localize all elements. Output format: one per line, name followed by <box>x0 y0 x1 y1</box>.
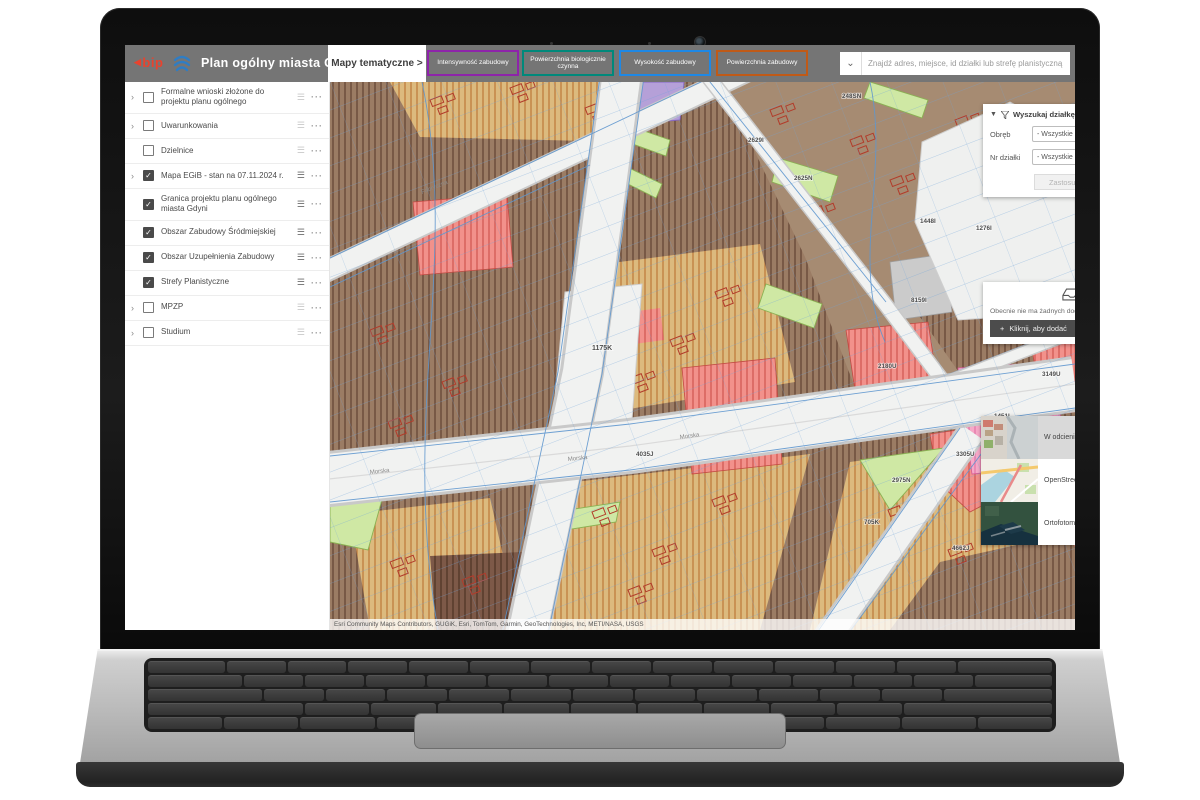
collapse-caret-icon[interactable]: ▼ <box>990 111 997 118</box>
layer-label: Dzielnice <box>161 146 297 156</box>
apply-button[interactable]: Zastosuj <box>1034 174 1075 190</box>
options-icon[interactable]: ··· <box>311 121 323 131</box>
theme-button-intensywnosc[interactable]: Intensywność zabudowy <box>427 50 519 76</box>
map-container: 248SN 2625N 2629I 1175K 1448I 1276I 8159… <box>330 82 1075 630</box>
bip-logo[interactable]: ◀bip <box>134 55 163 70</box>
layer-checkbox[interactable]: ✓ <box>143 277 154 288</box>
plus-icon: + <box>1000 324 1004 333</box>
options-icon[interactable]: ··· <box>311 303 323 313</box>
legend-icon[interactable]: ☰ <box>297 302 305 313</box>
svg-text:3149U: 3149U <box>1042 371 1061 378</box>
app-header: ◀bip Plan ogólny miasta Gdyni Mapy temat… <box>125 45 1075 82</box>
svg-text:1175K: 1175K <box>592 345 612 352</box>
layer-checkbox[interactable]: ✓ <box>143 199 154 210</box>
laptop-base-edge <box>76 762 1124 787</box>
layer-row-obszar-zabudowy[interactable]: › ✓ Obszar Zabudowy Śródmiejskiej ☰··· <box>125 221 329 246</box>
svg-text:2180U: 2180U <box>878 363 897 370</box>
legend-icon[interactable]: ☰ <box>297 170 305 181</box>
basemap-option-ortofotomapa[interactable]: Ortofotomapa <box>981 502 1075 545</box>
layer-row-granica-projektu[interactable]: › ✓ Granica projektu planu ogólnego mias… <box>125 189 329 221</box>
layer-row-formalne-wnioski[interactable]: › ✓ Formalne wnioski złożone do projektu… <box>125 82 329 114</box>
svg-text:248SN: 248SN <box>842 93 862 100</box>
theme-button-wysokosc[interactable]: Wysokość zabudowy <box>619 50 711 76</box>
chevron-right-icon[interactable]: › <box>131 328 141 338</box>
svg-text:705K: 705K <box>864 519 880 526</box>
layer-label: Strefy Planistyczne <box>161 277 297 287</box>
layer-label: Uwarunkowania <box>161 121 297 131</box>
options-icon[interactable]: ··· <box>311 253 323 263</box>
layer-checkbox[interactable]: ✓ <box>143 170 154 181</box>
layer-label: Mapa EGiB - stan na 07.11.2024 r. <box>161 171 297 181</box>
laptop-deck <box>80 649 1120 763</box>
basemap-option-openstreetmap[interactable]: OpenStreetMap <box>981 459 1075 502</box>
legend-icon[interactable]: ☰ <box>297 327 305 338</box>
panel-title: Wyszukaj działkę (stan na <box>1013 110 1075 119</box>
obreb-select[interactable]: - Wszystkie <box>1032 126 1075 142</box>
svg-text:3305U: 3305U <box>956 451 975 458</box>
layer-row-studium[interactable]: › ✓ Studium ☰··· <box>125 321 329 346</box>
options-icon[interactable]: ··· <box>311 228 323 238</box>
add-data-panel: Obecnie nie ma żadnych dodatków +Kliknij… <box>983 282 1075 344</box>
theme-button-powierzchnia-biologiczna[interactable]: Powierzchnia biologicznie czynna <box>522 50 614 76</box>
layer-checkbox[interactable]: ✓ <box>143 327 154 338</box>
basemap-label: W odcieniach szarości <box>1038 416 1075 459</box>
layer-row-mapa-egib[interactable]: › ✓ Mapa EGiB - stan na 07.11.2024 r. ☰·… <box>125 164 329 189</box>
search-box: ⌄ <box>840 52 1070 75</box>
app-screen: ◀bip Plan ogólny miasta Gdyni Mapy temat… <box>125 45 1075 630</box>
legend-icon[interactable]: ☰ <box>297 227 305 238</box>
layer-checkbox[interactable]: ✓ <box>143 252 154 263</box>
layer-row-mpzp[interactable]: › ✓ MPZP ☰··· <box>125 296 329 321</box>
layer-checkbox[interactable]: ✓ <box>143 145 154 156</box>
layer-label: MPZP <box>161 302 297 312</box>
laptop-touchpad <box>414 713 786 749</box>
options-icon[interactable]: ··· <box>311 92 323 102</box>
svg-text:4035J: 4035J <box>636 451 654 458</box>
field-label: Nr działki <box>990 153 1032 162</box>
tray-icon <box>1062 288 1075 301</box>
map-canvas[interactable]: 248SN 2625N 2629I 1175K 1448I 1276I 8159… <box>330 82 1075 630</box>
layer-label: Obszar Zabudowy Śródmiejskiej <box>161 227 297 237</box>
search-input[interactable] <box>862 52 1070 75</box>
layer-checkbox[interactable]: ✓ <box>143 92 154 103</box>
layer-label: Formalne wnioski złożone do projektu pla… <box>161 87 297 108</box>
basemap-thumbnail <box>981 416 1038 459</box>
chevron-down-icon[interactable]: ⌄ <box>840 52 862 75</box>
options-icon[interactable]: ··· <box>311 199 323 209</box>
svg-text:2629I: 2629I <box>748 137 764 144</box>
empty-message: Obecnie nie ma żadnych dodatków <box>990 308 1075 315</box>
bip-arrow-icon: ◀ <box>134 57 141 67</box>
thematic-maps-button[interactable]: Mapy tematyczne > <box>328 45 426 82</box>
layer-row-uwarunkowania[interactable]: › ✓ Uwarunkowania ☰··· <box>125 114 329 139</box>
gdynia-city-logo <box>171 52 193 74</box>
layer-checkbox[interactable]: ✓ <box>143 120 154 131</box>
basemap-thumbnail <box>981 459 1038 502</box>
layer-row-dzielnice[interactable]: › ✓ Dzielnice ☰··· <box>125 139 329 164</box>
options-icon[interactable]: ··· <box>311 278 323 288</box>
svg-text:4662J: 4662J <box>952 545 970 552</box>
layer-row-obszar-uzupelnienia[interactable]: › ✓ Obszar Uzupełnienia Zabudowy ☰··· <box>125 246 329 271</box>
chevron-right-icon[interactable]: › <box>131 303 141 313</box>
parcel-search-panel: ▼ Wyszukaj działkę (stan na Obręb - Wszy… <box>983 104 1075 197</box>
basemap-label: Ortofotomapa <box>1038 502 1075 545</box>
layer-label: Obszar Uzupełnienia Zabudowy <box>161 252 297 262</box>
layer-label: Studium <box>161 327 297 337</box>
basemap-option-grayscale[interactable]: W odcieniach szarości <box>981 416 1075 459</box>
field-label: Obręb <box>990 130 1032 139</box>
theme-button-powierzchnia-zabudowy[interactable]: Powierzchnia zabudowy <box>716 50 808 76</box>
layer-checkbox[interactable]: ✓ <box>143 302 154 313</box>
options-icon[interactable]: ··· <box>311 171 323 181</box>
chevron-right-icon[interactable]: › <box>131 92 141 102</box>
svg-text:1448I: 1448I <box>920 218 936 225</box>
filter-funnel-icon <box>1001 111 1009 119</box>
basemap-label: OpenStreetMap <box>1038 459 1075 502</box>
legend-icon[interactable]: ☰ <box>297 120 305 131</box>
legend-icon[interactable]: ☰ <box>297 252 305 263</box>
options-icon[interactable]: ··· <box>311 328 323 338</box>
layer-list-sidebar: › ✓ Formalne wnioski złożone do projektu… <box>125 82 330 630</box>
nr-dzialki-select[interactable]: - Wszystkie <box>1032 149 1075 165</box>
layer-row-strefy-planistyczne[interactable]: › ✓ Strefy Planistyczne ☰··· <box>125 271 329 296</box>
svg-text:2975N: 2975N <box>892 477 911 484</box>
legend-icon[interactable]: ☰ <box>297 92 305 103</box>
add-data-button[interactable]: +Kliknij, aby dodać <box>990 320 1075 337</box>
layer-checkbox[interactable]: ✓ <box>143 227 154 238</box>
layer-label: Granica projektu planu ogólnego miasta G… <box>161 194 297 215</box>
basemap-thumbnail <box>981 502 1038 545</box>
options-icon[interactable]: ··· <box>311 146 323 156</box>
legend-icon[interactable]: ☰ <box>297 277 305 288</box>
svg-text:1276I: 1276I <box>976 225 992 232</box>
map-attribution: Esri Community Maps Contributors, GUGiK,… <box>330 619 1075 630</box>
legend-icon[interactable]: ☰ <box>297 199 305 210</box>
chevron-right-icon[interactable]: › <box>131 121 141 131</box>
svg-text:8159I: 8159I <box>911 297 927 304</box>
svg-text:2625N: 2625N <box>794 175 813 182</box>
basemap-panel: W odcieniach szarości OpenStreetMap <box>981 416 1075 545</box>
legend-icon[interactable]: ☰ <box>297 145 305 156</box>
chevron-right-icon[interactable]: › <box>131 171 141 181</box>
